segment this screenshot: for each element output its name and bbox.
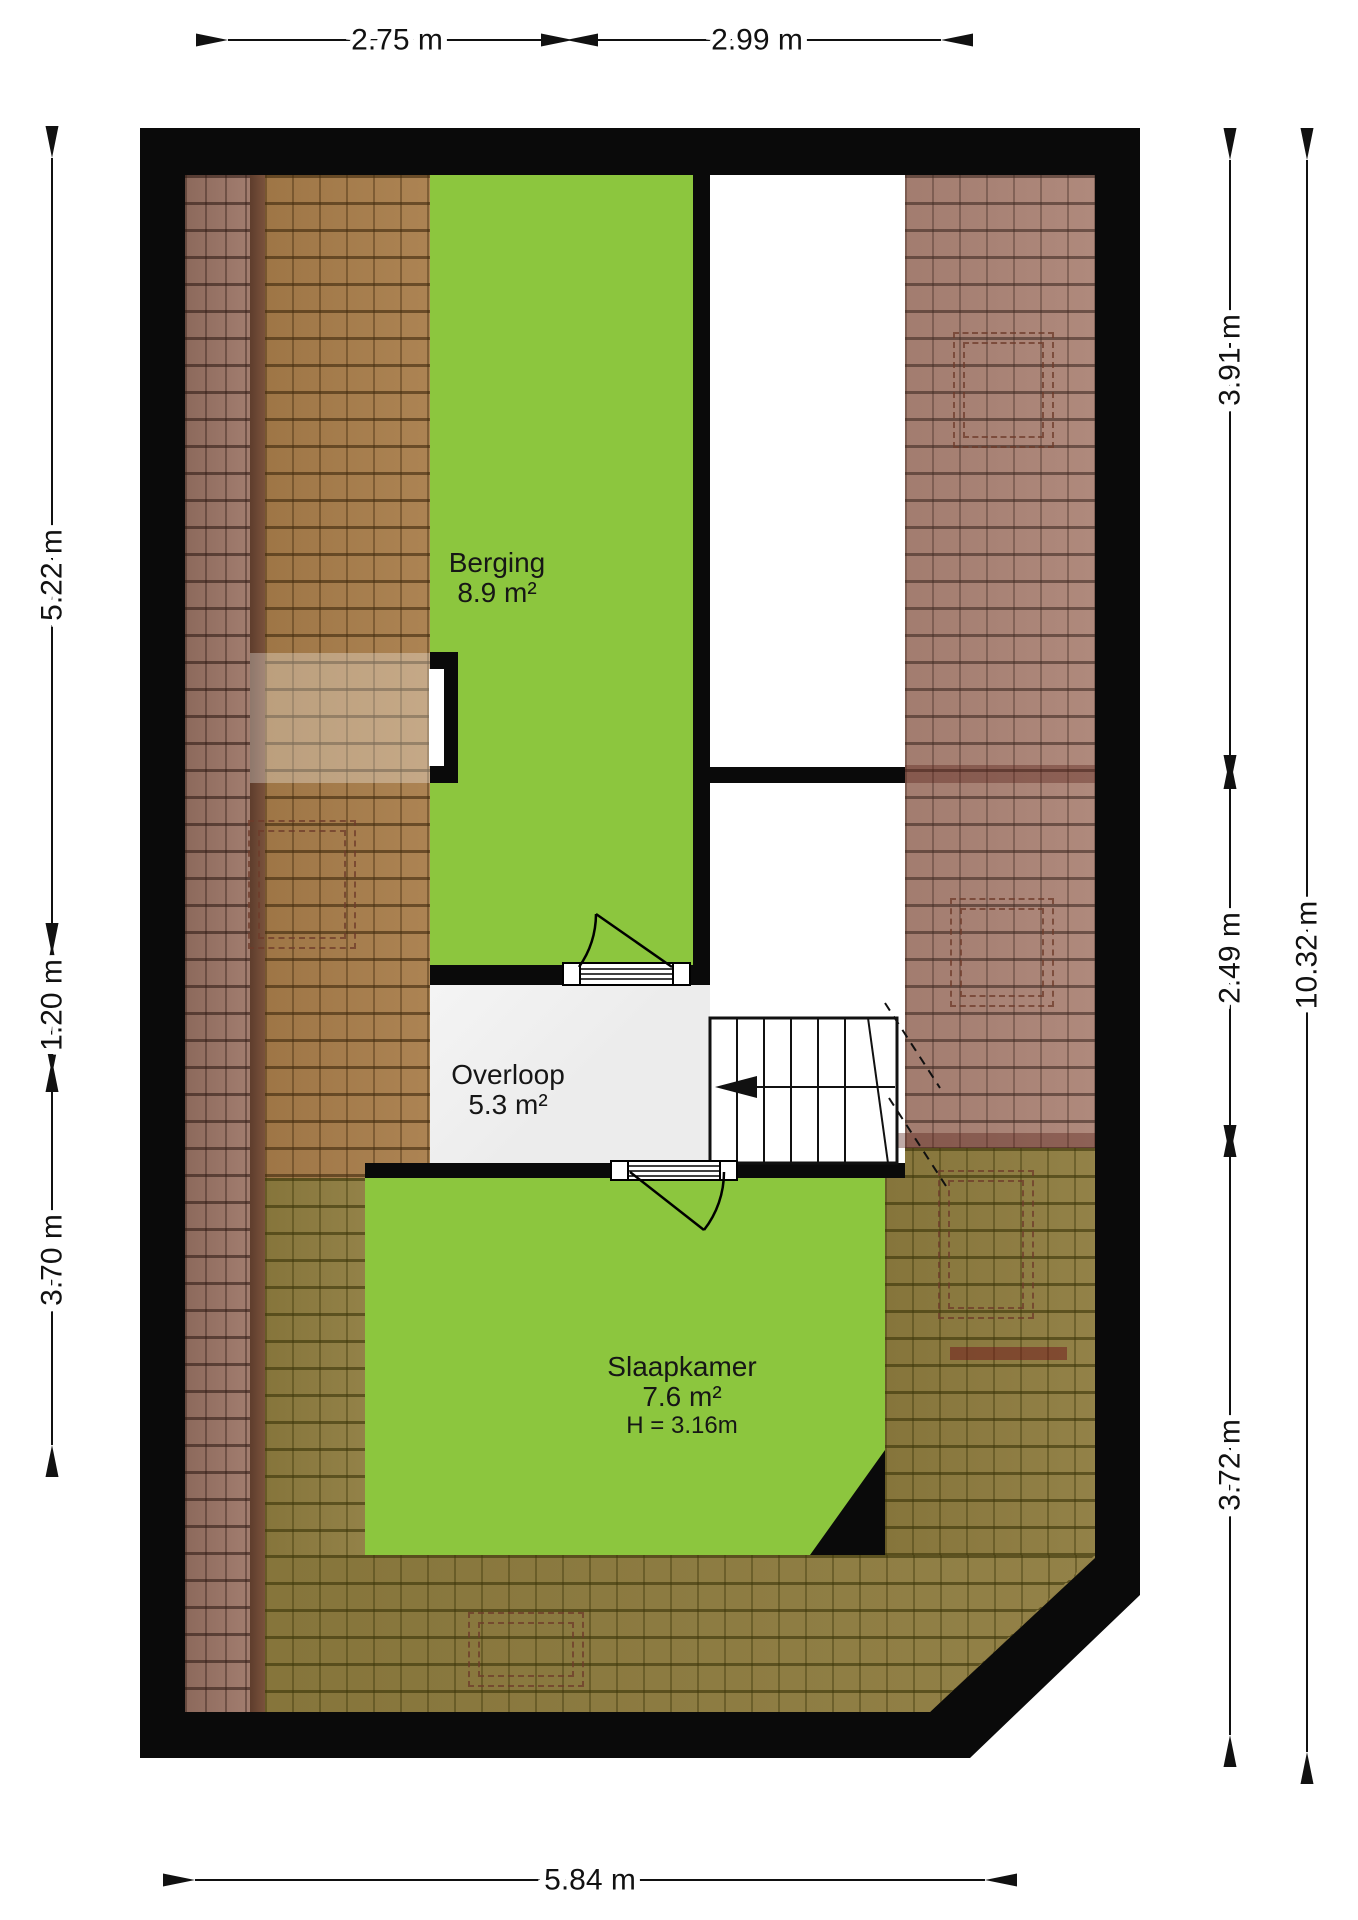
floorplan-canvas: Berging 8.9 m² Overloop 5.3 m² Slaapkame… xyxy=(0,0,1358,1920)
dim-label-right-1: 3.91 m xyxy=(1214,314,1247,406)
skylight-box-inner xyxy=(948,1180,1024,1309)
wall-shadow-on-roof xyxy=(905,765,1095,783)
skylight-box-right-middle xyxy=(950,898,1054,1007)
dim-label-right-3: 3.72 m xyxy=(1214,1419,1247,1511)
skylight-box-inner xyxy=(478,1622,574,1677)
label-slaapkamer: Slaapkamer 7.6 m² H = 3.16m xyxy=(607,1352,756,1440)
skylight-box-left xyxy=(248,820,356,949)
room-area: 7.6 m² xyxy=(607,1382,756,1412)
skylight-box-right-upper xyxy=(953,332,1054,448)
dim-label-left-2: 1.20 m xyxy=(36,959,69,1051)
room-name: Berging xyxy=(449,548,546,578)
roof-window-glass xyxy=(429,669,444,766)
skylight-box-right-lower xyxy=(938,1170,1034,1319)
roof-window-frame-side xyxy=(444,652,458,783)
room-name: Overloop xyxy=(451,1060,565,1090)
room-name: Slaapkamer xyxy=(607,1352,756,1382)
dim-label-bottom: 5.84 m xyxy=(544,1864,636,1897)
dim-label-left-1: 5.22 m xyxy=(36,529,69,621)
void-upper xyxy=(710,175,905,767)
roof-window-frame-bottom xyxy=(430,766,458,783)
label-berging: Berging 8.9 m² xyxy=(449,548,546,608)
skylight-box-inner xyxy=(963,342,1044,438)
skylight-box-inner xyxy=(960,908,1044,997)
skylight-box-bottom xyxy=(468,1612,584,1687)
room-height: H = 3.16m xyxy=(607,1412,756,1440)
roof-strip-left-dark xyxy=(185,175,250,1712)
stairwell-void xyxy=(710,783,905,1163)
wall-berging-right xyxy=(693,175,710,985)
wall-landing-top xyxy=(693,767,905,783)
wall-overloop-bottom xyxy=(365,1163,905,1178)
roof-maroon-stripe xyxy=(950,1347,1067,1360)
roof-window-light xyxy=(250,653,430,783)
dim-label-right-2: 2.49 m xyxy=(1214,912,1247,1004)
room-area: 5.3 m² xyxy=(451,1090,565,1120)
label-overloop: Overloop 5.3 m² xyxy=(451,1060,565,1120)
dim-label-right-total: 10.32 m xyxy=(1291,901,1324,1009)
wall-berging-bottom xyxy=(430,965,693,985)
dim-label-top-2: 2.99 m xyxy=(711,24,803,57)
room-area: 8.9 m² xyxy=(449,578,546,608)
dim-label-left-3: 3.70 m xyxy=(36,1214,69,1306)
dim-label-top-1: 2.75 m xyxy=(351,24,443,57)
skylight-box-inner xyxy=(258,830,346,939)
roof-transition-band xyxy=(885,1133,1095,1148)
